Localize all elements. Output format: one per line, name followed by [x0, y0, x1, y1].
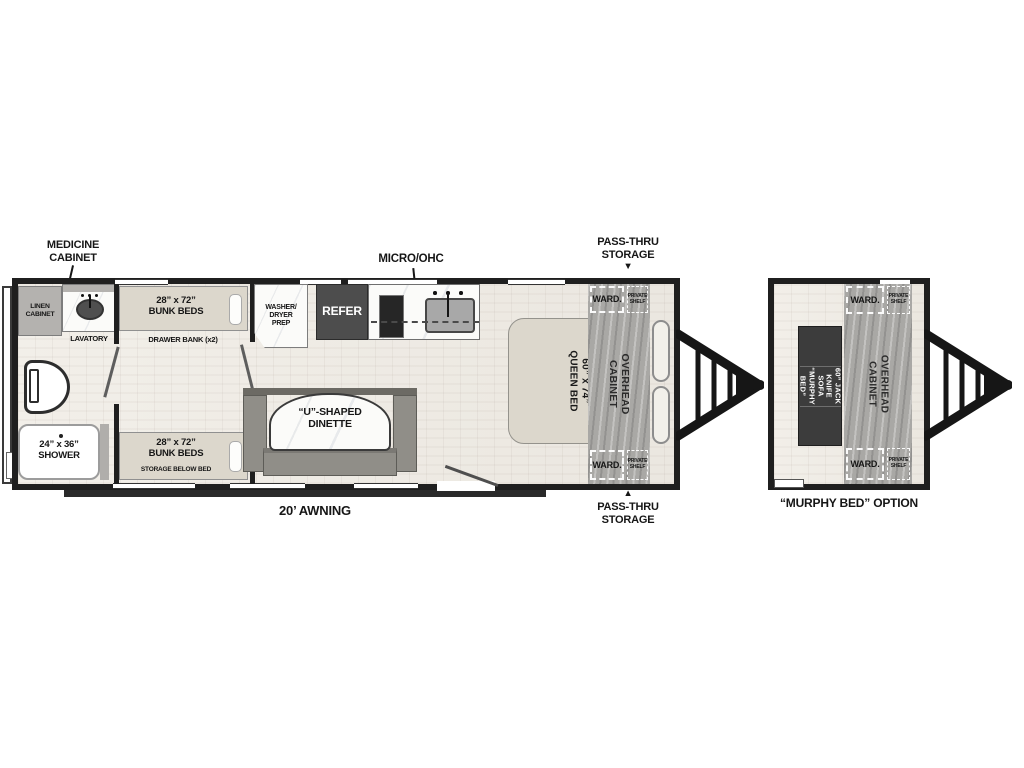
refer-label: REFER — [322, 305, 362, 319]
murphy-option-caption: “MURPHY BED” OPTION — [770, 497, 928, 511]
wardrobe: WARD. — [846, 448, 884, 480]
window — [115, 279, 168, 285]
refrigerator: REFER — [316, 284, 368, 340]
bunk-bed-label: 28” x 72” BUNK BEDS — [120, 438, 232, 460]
pillow — [229, 294, 242, 325]
entry-step — [774, 479, 804, 488]
toilet-icon — [24, 360, 70, 414]
arrow-up-icon: ▲ — [582, 489, 674, 500]
rv-floorplan-diagram: MEDICINE CABINET MICRO/OHC PASS-THRU STO… — [0, 0, 1024, 768]
private-shelf: PRIVATE SHELF — [627, 450, 648, 480]
medicine-cabinet-label: MEDICINE CABINET — [25, 239, 121, 264]
wardrobe: WARD. — [590, 286, 624, 313]
faucet-icon — [459, 291, 463, 295]
window — [230, 483, 305, 489]
private-shelf: PRIVATE SHELF — [627, 286, 648, 313]
awning-label: 20’ AWNING — [250, 504, 380, 519]
pass-thru-door — [652, 386, 670, 444]
micro-ohc-label: MICRO/OHC — [356, 253, 466, 266]
main-floorplan: LINEN CABINET LAVATORY 24” x 36” SHOWER … — [12, 278, 680, 490]
pass-thru-door — [652, 320, 670, 382]
window — [354, 483, 418, 489]
faucet-stem — [447, 293, 449, 317]
dinette: “U”-SHAPED DINETTE — [243, 388, 417, 480]
bunk-bed-bottom: 28” x 72” BUNK BEDS STORAGE BELOW BED — [119, 432, 248, 480]
pass-thru-storage-bottom-label: PASS-THRU STORAGE — [582, 501, 674, 526]
linen-cabinet-label: LINEN CABINET — [26, 303, 55, 318]
pillow — [229, 441, 242, 472]
storage-below-bed-label: STORAGE BELOW BED — [120, 466, 232, 473]
faucet-icon — [95, 294, 98, 297]
shower-label: 24” x 36” SHOWER — [20, 440, 98, 462]
hitch-frame-icon — [676, 326, 764, 444]
awning-bar — [64, 490, 546, 497]
private-shelf-label: PRIVATE SHELF — [889, 294, 909, 305]
bunkroom-door — [240, 344, 255, 393]
bunk-bed-label: 28” x 72” BUNK BEDS — [120, 296, 232, 318]
wardrobe: WARD. — [590, 450, 624, 480]
private-shelf: PRIVATE SHELF — [887, 448, 910, 480]
murphy-sofa: 60” JACK KNIFE SOFA “MURPHY BED” — [798, 326, 842, 446]
washer-dryer-label: WASHER/ DRYER PREP — [265, 304, 296, 328]
wardrobe-label: WARD. — [851, 459, 880, 469]
shower-side-wall — [100, 424, 109, 480]
shower: 24” x 36” SHOWER — [18, 424, 100, 480]
murphy-sofa-label: 60” JACK KNIFE SOFA “MURPHY BED” — [798, 367, 841, 405]
washer-dryer-prep: WASHER/ DRYER PREP — [254, 284, 308, 348]
wardrobe: WARD. — [846, 286, 884, 314]
shower-drain-icon — [59, 434, 63, 438]
faucet-icon — [433, 291, 437, 295]
overhead-cabinet: WARD. PRIVATE SHELF WARD. PRIVATE SHELF … — [588, 284, 650, 484]
bathroom-door — [103, 347, 119, 398]
kitchen-counter — [368, 284, 480, 340]
kitchen-sink-icon — [425, 298, 475, 333]
overhead-cabinet-label: OVERHEAD CABINET — [867, 355, 890, 413]
medicine-cabinet — [63, 285, 115, 292]
wardrobe-label: WARD. — [593, 460, 622, 470]
counter-edge — [371, 321, 479, 323]
bunk-bed-top: 28” x 72” BUNK BEDS — [119, 286, 248, 331]
faucet-icon — [81, 294, 84, 297]
lavatory-counter — [62, 284, 116, 332]
range-icon — [379, 295, 404, 338]
drawer-bank-label: DRAWER BANK (x2) — [113, 336, 253, 345]
faucet-stem — [89, 296, 91, 308]
dinette-label: “U”-SHAPED DINETTE — [271, 407, 389, 431]
private-shelf-label: PRIVATE SHELF — [628, 294, 648, 305]
private-shelf-label: PRIVATE SHELF — [628, 459, 648, 470]
dinette-bench-bottom — [263, 448, 397, 476]
linen-cabinet: LINEN CABINET — [18, 286, 62, 336]
pass-thru-storage-top-label: PASS-THRU STORAGE — [582, 236, 674, 261]
arrow-down-icon: ▼ — [582, 262, 674, 273]
private-shelf: PRIVATE SHELF — [887, 286, 910, 314]
hitch-frame-icon — [924, 326, 1012, 444]
sofa-cushion-divider — [800, 406, 841, 407]
private-shelf-label: PRIVATE SHELF — [889, 458, 909, 469]
dinette-table: “U”-SHAPED DINETTE — [269, 393, 391, 451]
window — [113, 483, 195, 489]
murphy-floorplan: 60” JACK KNIFE SOFA “MURPHY BED” WARD. P… — [768, 278, 930, 490]
wardrobe-label: WARD. — [851, 295, 880, 305]
overhead-cabinet: WARD. PRIVATE SHELF WARD. PRIVATE SHELF … — [844, 284, 912, 484]
window — [508, 279, 565, 285]
wardrobe-label: WARD. — [593, 294, 622, 304]
toilet-tank — [29, 369, 39, 403]
overhead-cabinet-label: OVERHEAD CABINET — [607, 353, 631, 414]
